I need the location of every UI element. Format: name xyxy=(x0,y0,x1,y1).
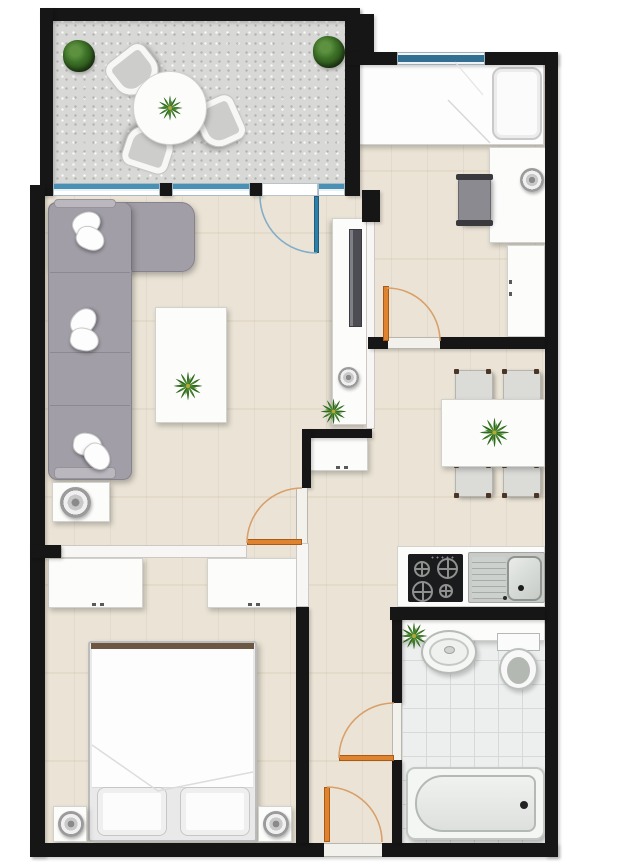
entry-door-leaf xyxy=(324,787,330,842)
dining-chair-3 xyxy=(455,464,493,497)
balcony-door-opening xyxy=(262,183,318,196)
entry-door-gap xyxy=(324,843,382,857)
desk xyxy=(489,147,546,243)
hall-west-partition xyxy=(296,543,309,607)
coffee-table-plant xyxy=(172,370,204,402)
bathroom-door-jamb xyxy=(392,703,402,760)
bathroom-door-leaf xyxy=(339,755,394,761)
sofa-pillow-pair-3 xyxy=(71,433,113,475)
wall-bathroom-left-upper xyxy=(392,612,402,703)
small-bedroom-door-gap xyxy=(388,337,440,349)
partition-behind-tv xyxy=(366,196,375,429)
bed-pillow-right xyxy=(180,787,250,836)
glass-panel-3 xyxy=(318,183,345,196)
single-bed-pillow xyxy=(492,67,542,140)
dresser-left xyxy=(48,558,143,608)
dining-chair-4 xyxy=(503,464,541,497)
bathtub-drain xyxy=(520,801,528,809)
bed-duvet xyxy=(92,649,253,788)
kitchen-cabinet xyxy=(308,437,368,471)
bathtub xyxy=(406,767,545,840)
sofa-pillow-pair-2 xyxy=(66,308,106,356)
wall-main-bedroom-right xyxy=(296,607,309,843)
wall-kitchen-bottom xyxy=(390,607,545,620)
vanity-plant xyxy=(399,621,429,651)
wall-bottom-outer xyxy=(30,843,558,857)
glass-divider-2 xyxy=(250,183,262,196)
wardrobe xyxy=(507,245,545,337)
tv xyxy=(349,229,362,327)
glass-panel-1 xyxy=(53,183,160,196)
toilet-bowl xyxy=(499,648,538,690)
sofa-pillow-pair-1 xyxy=(70,212,110,256)
kitchen-door-leaf xyxy=(247,539,302,545)
bedroom-top-partition xyxy=(61,545,247,558)
wall-bathroom-left-lower xyxy=(392,760,402,843)
small-bedroom-window xyxy=(397,52,485,65)
cabinet-plant xyxy=(319,397,348,426)
sofa-seam-3 xyxy=(50,405,130,406)
sofa-seam-4 xyxy=(131,210,132,270)
wall-left-outer xyxy=(30,185,45,857)
bush-right xyxy=(313,36,345,68)
side-table-speaker xyxy=(60,487,91,518)
floor-plan xyxy=(0,0,640,865)
sink-faucet-dot xyxy=(518,585,524,591)
bush-left xyxy=(63,40,95,72)
wall-stub-below-balcony xyxy=(362,190,380,222)
wall-main-bedroom-top-stub xyxy=(30,545,61,558)
sofa-backrest-top xyxy=(54,199,116,208)
small-bedroom-door-leaf xyxy=(383,286,389,341)
bed-pillow-left xyxy=(97,787,167,836)
wall-balcony-left xyxy=(40,8,53,196)
dining-table-plant xyxy=(478,416,511,449)
dresser-right xyxy=(207,558,297,608)
sink-drain-dot xyxy=(503,596,507,600)
nightstand-left-lamp xyxy=(58,811,84,837)
desk-chair xyxy=(458,175,491,225)
desk-lamp xyxy=(520,168,544,192)
cabinet-speaker xyxy=(338,367,359,388)
glass-panel-2 xyxy=(172,183,250,196)
coffee-table xyxy=(155,307,227,423)
wall-balcony-top xyxy=(40,8,360,21)
balcony-table-plant xyxy=(156,94,184,122)
kitchen-sink-unit xyxy=(468,552,545,603)
wall-kitchen-horizontal xyxy=(302,429,372,438)
balcony-glass-door-leaf xyxy=(314,196,319,253)
gas-hob xyxy=(408,554,463,602)
sink-basin xyxy=(507,556,542,601)
wall-kitchen-vertical xyxy=(302,429,311,488)
sofa-seam-1 xyxy=(50,272,130,273)
bathroom-sink xyxy=(421,630,477,674)
glass-divider-1 xyxy=(160,183,172,196)
kitchen-door-jamb xyxy=(296,488,308,543)
wall-right-outer xyxy=(545,52,558,857)
nightstand-right-lamp xyxy=(263,811,289,837)
double-bed xyxy=(88,641,257,842)
sink-drainboard xyxy=(472,557,506,599)
